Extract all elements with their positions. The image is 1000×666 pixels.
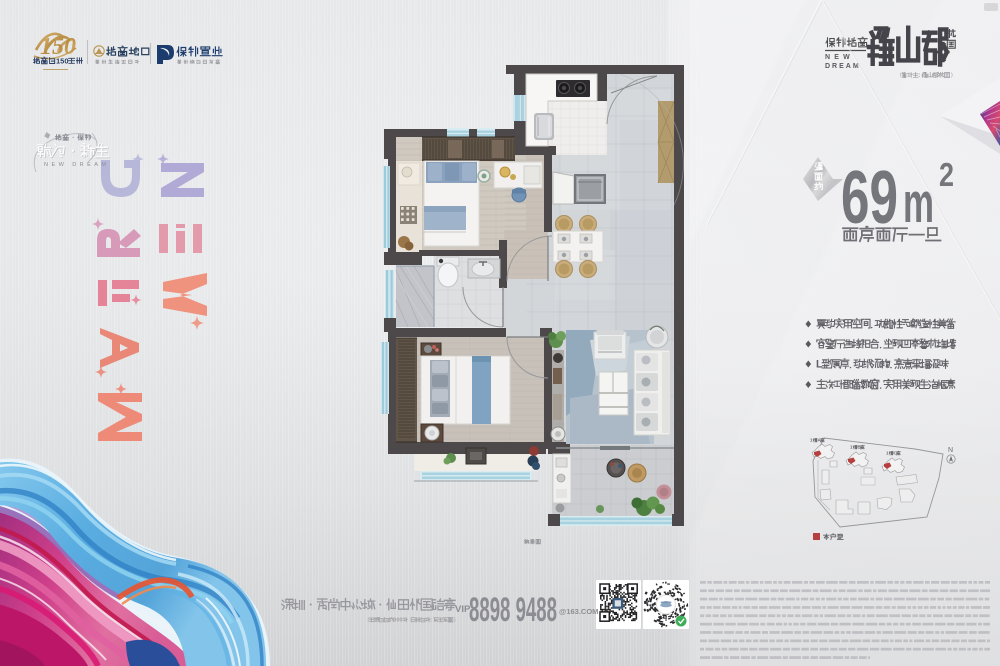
svg-text:1: 1 bbox=[850, 445, 853, 450]
svg-text:DREAM: DREAM bbox=[825, 63, 861, 70]
svg-text:1: 1 bbox=[886, 451, 889, 456]
svg-text:150: 150 bbox=[56, 57, 69, 66]
svg-text:2: 2 bbox=[939, 156, 954, 193]
svg-text:N: N bbox=[948, 447, 953, 454]
svg-text:m: m bbox=[903, 171, 934, 235]
svg-text:NEW DREAM: NEW DREAM bbox=[44, 162, 109, 168]
svg-text:L: L bbox=[816, 359, 823, 371]
svg-text:8898 9488: 8898 9488 bbox=[469, 591, 557, 629]
svg-text:B: B bbox=[858, 445, 861, 450]
svg-text::: : bbox=[918, 73, 920, 79]
svg-text:NEW: NEW bbox=[825, 54, 854, 61]
svg-text:69: 69 bbox=[841, 155, 898, 239]
svg-text:0: 0 bbox=[400, 618, 403, 624]
svg-text:@163.COM: @163.COM bbox=[559, 607, 598, 616]
svg-text::: : bbox=[430, 618, 432, 624]
svg-text:1: 1 bbox=[810, 438, 813, 443]
